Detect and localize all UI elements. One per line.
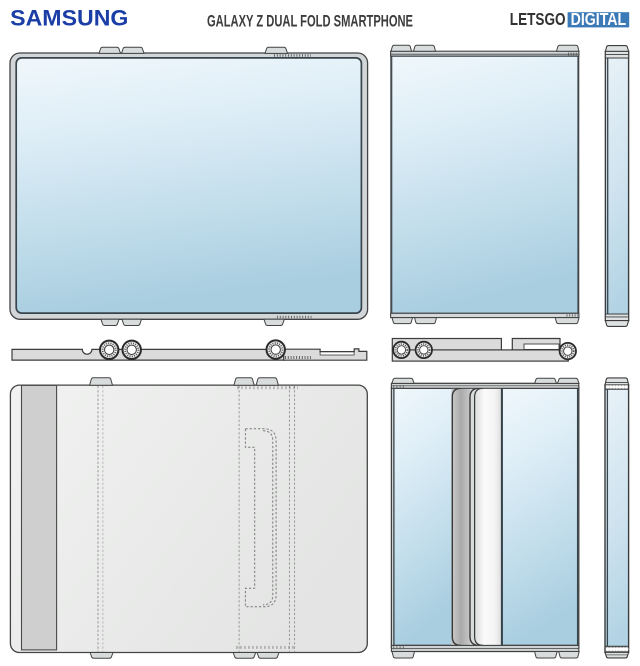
svg-text:SAMSUNG: SAMSUNG	[10, 6, 128, 31]
svg-text:LETSGO: LETSGO	[510, 9, 566, 29]
svg-text:GALAXY Z DUAL FOLD SMARTPHONE: GALAXY Z DUAL FOLD SMARTPHONE	[207, 13, 413, 31]
svg-text:DIGITAL: DIGITAL	[571, 9, 627, 29]
